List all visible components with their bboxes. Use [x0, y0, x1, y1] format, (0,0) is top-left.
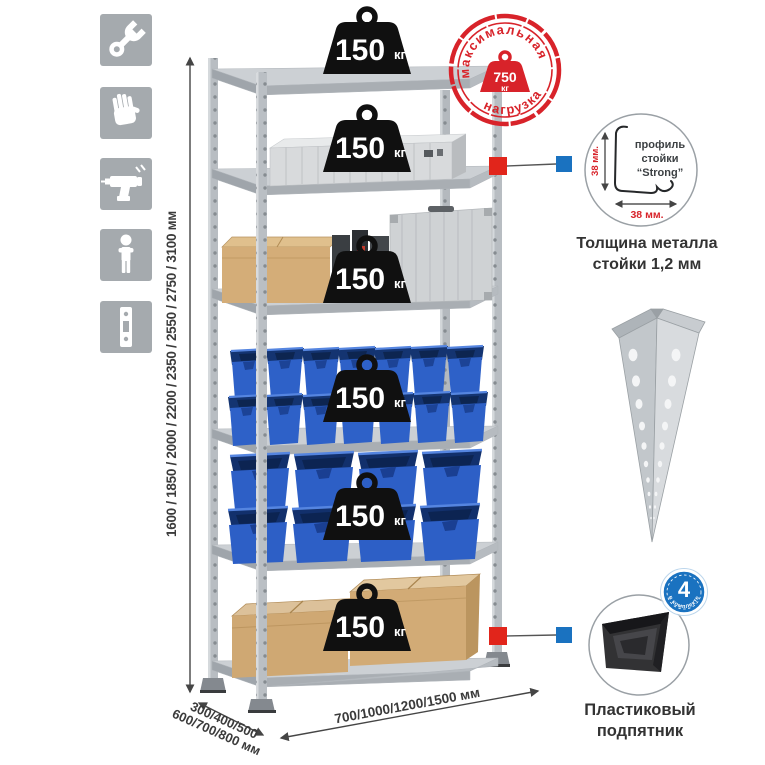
- profile-caption: Толщина металла стойки 1,2 мм: [572, 234, 722, 276]
- height-dimension: 1600 / 1850 / 2000 / 2200 / 2350 / 2550 …: [164, 58, 190, 692]
- load-badge-1: 150 кг: [323, 9, 411, 74]
- marker-red-top: [489, 157, 507, 175]
- angle-post-image: [612, 309, 705, 542]
- svg-text:кг: кг: [394, 395, 407, 410]
- svg-text:150: 150: [335, 500, 385, 533]
- svg-text:кг: кг: [394, 624, 407, 639]
- svg-text:стойки: стойки: [641, 153, 678, 165]
- svg-text:кг: кг: [394, 145, 407, 160]
- max-load-stamp: максимальная нагрузка 750 кг: [447, 11, 564, 127]
- svg-text:150: 150: [335, 263, 385, 296]
- plastic-foot-detail: 4 в комплекте: [589, 569, 708, 696]
- svg-text:“Strong”: “Strong”: [637, 167, 683, 179]
- stamp-weight-icon: 750 кг: [480, 52, 530, 93]
- load-badge-2: 150 кг: [323, 107, 411, 172]
- post-profile-detail: 38 мм. 38 мм. профиль стойки “Strong”: [585, 114, 697, 226]
- rack-scene: 1600 / 1850 / 2000 / 2200 / 2350 / 2550 …: [0, 0, 765, 765]
- marker-blue-bottom: [556, 627, 572, 643]
- height-dimension-label: 1600 / 1850 / 2000 / 2200 / 2350 / 2550 …: [164, 211, 179, 537]
- svg-text:кг: кг: [501, 83, 509, 93]
- foot-caption: Пластиковый подпятник: [565, 700, 715, 743]
- product-infographic: 1600 / 1850 / 2000 / 2200 / 2350 / 2550 …: [0, 0, 765, 765]
- marker-blue-top: [556, 156, 572, 172]
- svg-text:150: 150: [335, 382, 385, 415]
- svg-text:150: 150: [335, 34, 385, 67]
- svg-text:кг: кг: [394, 47, 407, 62]
- profile-horizontal-dim: 38 мм.: [630, 209, 663, 221]
- kit-count-badge: 4 в комплекте: [661, 569, 708, 616]
- kit-count-value: 4: [678, 577, 691, 602]
- cardboard-box-small: [222, 237, 340, 303]
- profile-vertical-dim: 38 мм.: [590, 146, 601, 176]
- marker-red-bottom: [489, 627, 507, 645]
- width-dimension: 700/1000/1200/1500 мм: [281, 685, 538, 738]
- svg-text:кг: кг: [394, 276, 407, 291]
- svg-text:150: 150: [335, 611, 385, 644]
- svg-text:150: 150: [335, 132, 385, 165]
- svg-text:профиль: профиль: [635, 139, 685, 151]
- svg-text:кг: кг: [394, 513, 407, 528]
